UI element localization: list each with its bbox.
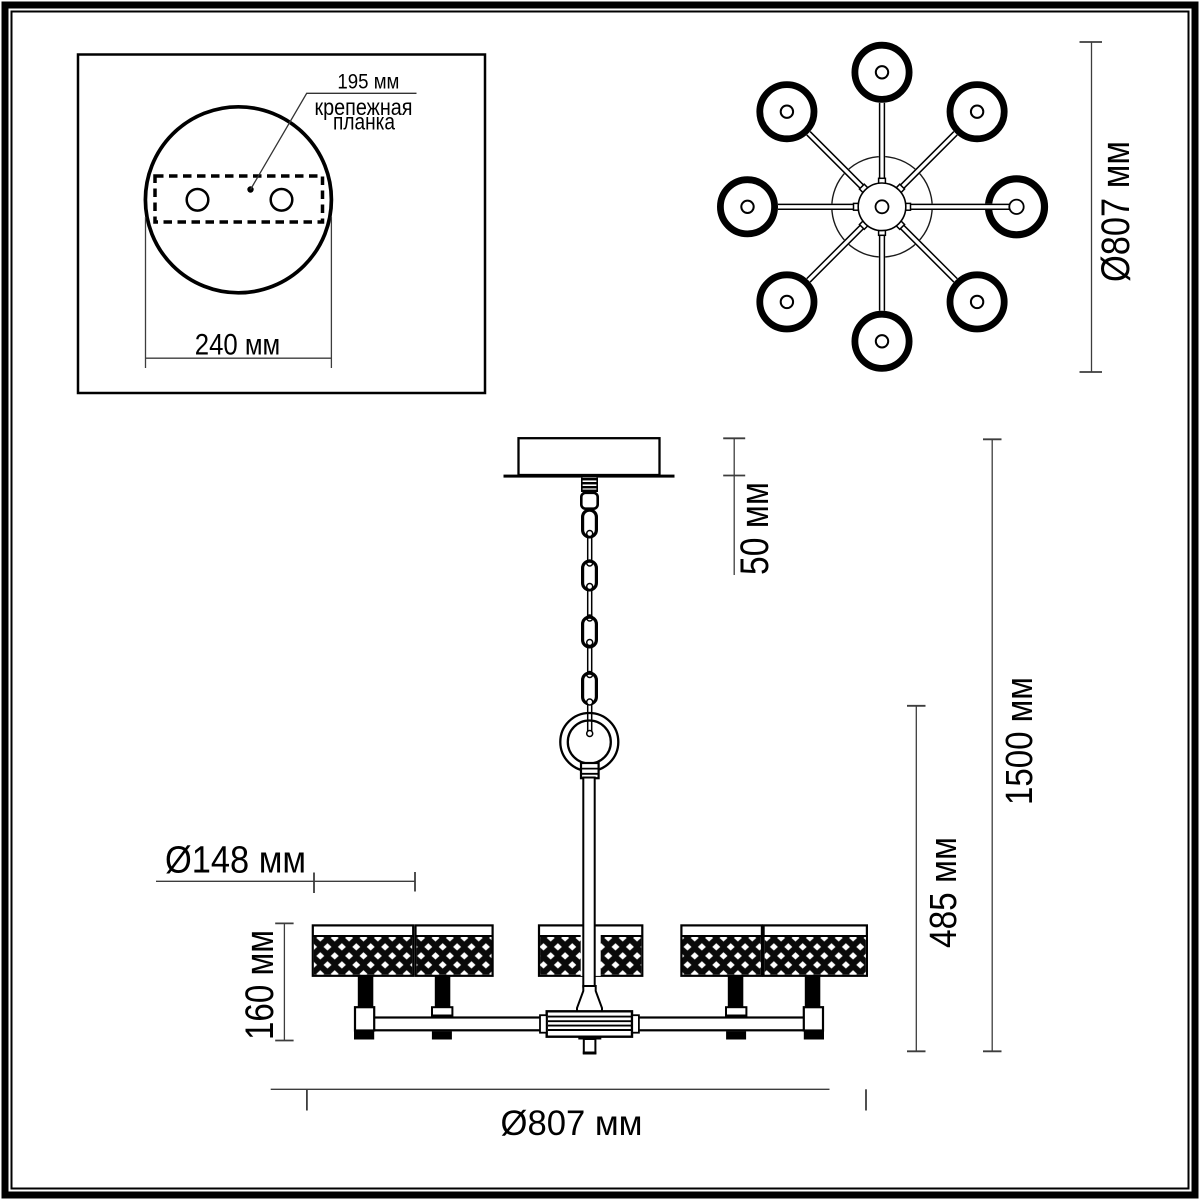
- svg-text:50 мм: 50 мм: [733, 482, 777, 575]
- svg-text:485 мм: 485 мм: [923, 837, 965, 948]
- svg-text:1500 мм: 1500 мм: [999, 677, 1041, 805]
- svg-text:195 мм: 195 мм: [337, 71, 399, 94]
- svg-text:160 мм: 160 мм: [238, 930, 282, 1040]
- svg-text:Ø807 мм: Ø807 мм: [1094, 141, 1138, 282]
- svg-text:Ø807 мм: Ø807 мм: [501, 1104, 643, 1143]
- svg-text:планка: планка: [333, 109, 395, 135]
- svg-text:Ø148 мм: Ø148 мм: [165, 840, 306, 882]
- svg-text:240 мм: 240 мм: [195, 329, 281, 362]
